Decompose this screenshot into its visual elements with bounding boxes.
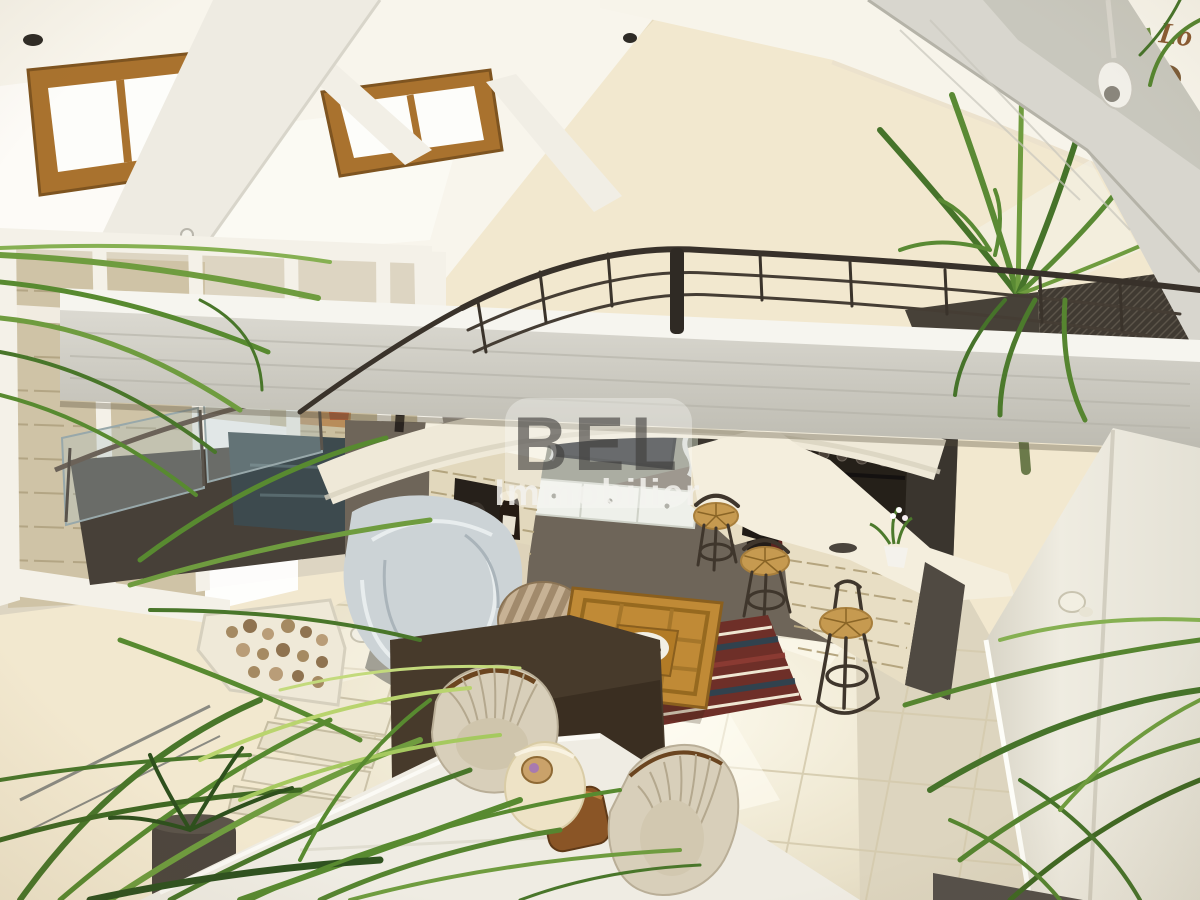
agency-watermark: BEL Immobilier bbox=[494, 398, 701, 513]
property-photo: Lo bbox=[0, 0, 1200, 900]
photo-canvas: Lo bbox=[0, 0, 1200, 900]
watermark-line2: Immobilier bbox=[494, 472, 701, 513]
